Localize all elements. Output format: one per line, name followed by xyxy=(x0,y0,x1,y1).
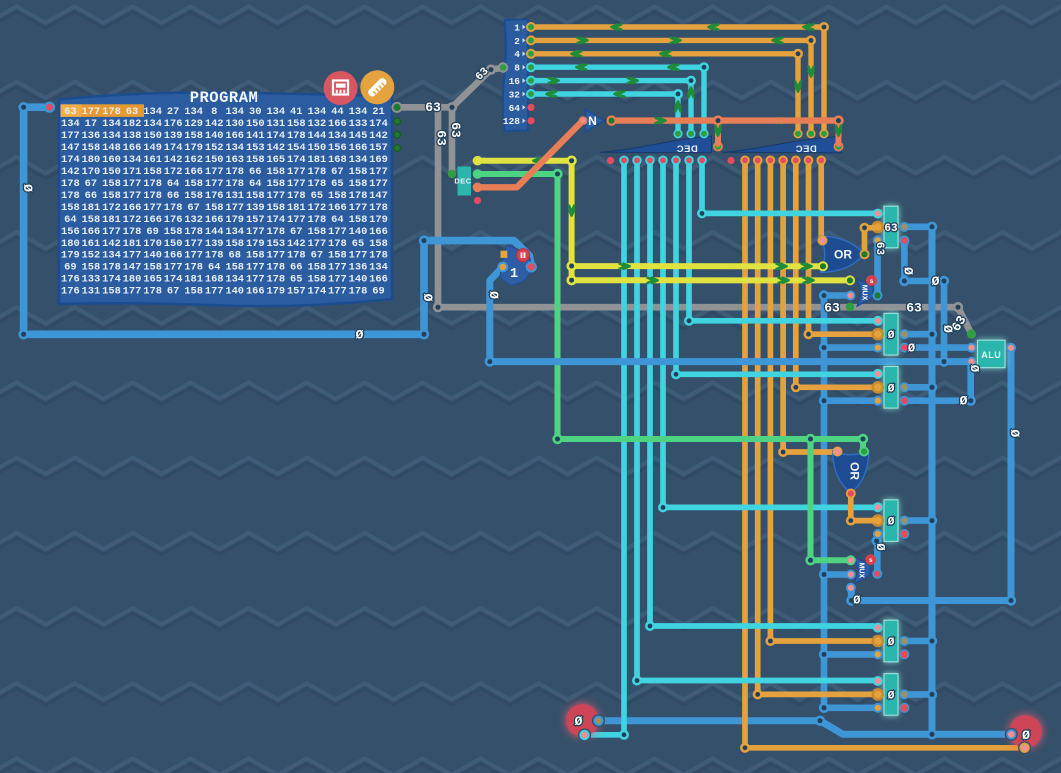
svg-text:134: 134 xyxy=(225,274,244,286)
svg-text:158: 158 xyxy=(184,286,203,298)
svg-text:Ø: Ø xyxy=(873,543,887,550)
svg-text:158: 158 xyxy=(82,142,101,154)
svg-text:181: 181 xyxy=(308,154,327,166)
svg-text:Ø: Ø xyxy=(967,365,981,372)
svg-text:166: 166 xyxy=(184,166,203,178)
svg-text:67: 67 xyxy=(187,202,199,214)
svg-text:176: 176 xyxy=(164,118,183,130)
svg-text:157: 157 xyxy=(369,142,388,154)
svg-text:174: 174 xyxy=(102,274,121,286)
svg-text:Ø: Ø xyxy=(888,517,895,529)
svg-text:150: 150 xyxy=(205,154,224,166)
svg-text:178: 178 xyxy=(369,202,388,214)
svg-text:134: 134 xyxy=(102,250,121,262)
svg-text:65: 65 xyxy=(331,178,343,190)
svg-text:131: 131 xyxy=(225,190,244,202)
svg-text:67: 67 xyxy=(290,226,302,238)
svg-text:Ø: Ø xyxy=(900,267,915,275)
svg-text:178: 178 xyxy=(287,130,306,142)
svg-text:66: 66 xyxy=(85,190,97,202)
svg-text:Ø: Ø xyxy=(420,294,435,302)
svg-text:142: 142 xyxy=(287,238,306,250)
svg-text:139: 139 xyxy=(246,202,265,214)
svg-text:178: 178 xyxy=(349,286,368,298)
svg-text:134: 134 xyxy=(308,106,327,118)
svg-text:130: 130 xyxy=(225,118,244,130)
svg-text:67: 67 xyxy=(311,250,323,262)
svg-text:69: 69 xyxy=(372,286,384,298)
svg-text:177: 177 xyxy=(61,130,80,142)
svg-text:178: 178 xyxy=(308,214,327,226)
svg-text:21: 21 xyxy=(372,106,384,118)
svg-text:158: 158 xyxy=(349,214,368,226)
svg-text:136: 136 xyxy=(349,262,368,274)
svg-text:142: 142 xyxy=(205,118,224,130)
svg-text:156: 156 xyxy=(61,226,80,238)
svg-text:178: 178 xyxy=(143,178,162,190)
svg-text:166: 166 xyxy=(123,142,142,154)
svg-text:168: 168 xyxy=(205,274,224,286)
svg-text:178: 178 xyxy=(308,178,327,190)
svg-text:140: 140 xyxy=(143,250,162,262)
svg-text:DEC: DEC xyxy=(454,177,471,186)
svg-text:177: 177 xyxy=(205,178,224,190)
svg-text:178: 178 xyxy=(143,286,162,298)
svg-text:138: 138 xyxy=(123,130,142,142)
svg-text:Ø: Ø xyxy=(356,328,364,343)
svg-text:163: 163 xyxy=(225,154,244,166)
svg-text:178: 178 xyxy=(143,190,162,202)
svg-text:134: 134 xyxy=(328,130,347,142)
svg-text:1: 1 xyxy=(514,22,520,33)
svg-text:66: 66 xyxy=(167,190,179,202)
svg-text:158: 158 xyxy=(82,262,101,274)
svg-text:158: 158 xyxy=(225,238,244,250)
svg-text:177: 177 xyxy=(266,190,285,202)
svg-text:133: 133 xyxy=(349,118,368,130)
svg-text:178: 178 xyxy=(308,166,327,178)
svg-text:165: 165 xyxy=(143,274,162,286)
svg-text:153: 153 xyxy=(266,238,285,250)
svg-text:Ø: Ø xyxy=(853,594,860,608)
svg-text:158: 158 xyxy=(143,166,162,178)
svg-text:147: 147 xyxy=(61,142,80,154)
svg-text:63: 63 xyxy=(824,301,840,316)
svg-text:174: 174 xyxy=(369,118,388,130)
svg-text:27: 27 xyxy=(167,106,179,118)
svg-text:Ø: Ø xyxy=(1007,429,1022,437)
svg-text:166: 166 xyxy=(369,226,388,238)
svg-text:Ø: Ø xyxy=(960,394,968,409)
svg-text:166: 166 xyxy=(164,250,183,262)
svg-text:166: 166 xyxy=(246,286,265,298)
svg-text:178: 178 xyxy=(123,226,142,238)
svg-text:158: 158 xyxy=(266,202,285,214)
svg-text:134: 134 xyxy=(266,106,285,118)
svg-text:65: 65 xyxy=(352,238,364,250)
svg-text:142: 142 xyxy=(102,238,121,250)
svg-text:181: 181 xyxy=(184,274,203,286)
svg-text:177: 177 xyxy=(184,250,203,262)
svg-text:63: 63 xyxy=(64,106,76,118)
svg-text:131: 131 xyxy=(82,286,101,298)
svg-text:64: 64 xyxy=(64,214,76,226)
svg-text:30: 30 xyxy=(249,106,261,118)
svg-text:134: 134 xyxy=(349,106,368,118)
svg-text:44: 44 xyxy=(331,106,343,118)
svg-text:178: 178 xyxy=(266,274,285,286)
svg-text:176: 176 xyxy=(61,286,80,298)
svg-text:63: 63 xyxy=(126,106,138,118)
svg-text:177: 177 xyxy=(123,190,142,202)
svg-text:157: 157 xyxy=(287,286,306,298)
svg-text:2: 2 xyxy=(514,36,520,47)
svg-text:PROGRAM: PROGRAM xyxy=(190,89,259,107)
svg-text:134: 134 xyxy=(143,118,162,130)
svg-text:158: 158 xyxy=(143,262,162,274)
svg-text:65: 65 xyxy=(311,190,323,202)
svg-text:158: 158 xyxy=(328,250,347,262)
svg-text:158: 158 xyxy=(102,178,121,190)
svg-text:160: 160 xyxy=(102,154,121,166)
svg-text:OR: OR xyxy=(834,248,852,262)
svg-text:166: 166 xyxy=(123,202,142,214)
svg-text:177: 177 xyxy=(205,286,224,298)
svg-text:158: 158 xyxy=(164,226,183,238)
svg-text:149: 149 xyxy=(143,142,162,154)
svg-text:169: 169 xyxy=(369,154,388,166)
svg-text:158: 158 xyxy=(184,130,203,142)
svg-text:172: 172 xyxy=(123,214,142,226)
svg-text:Ø: Ø xyxy=(888,330,895,342)
svg-text:177: 177 xyxy=(349,250,368,262)
svg-text:177: 177 xyxy=(266,250,285,262)
svg-text:DEC: DEC xyxy=(676,143,698,154)
svg-text:181: 181 xyxy=(287,202,306,214)
svg-text:63: 63 xyxy=(448,122,463,138)
svg-text:177: 177 xyxy=(123,178,142,190)
svg-text:Ø: Ø xyxy=(888,690,895,702)
svg-text:N: N xyxy=(588,114,597,128)
svg-text:144: 144 xyxy=(308,130,327,142)
svg-text:177: 177 xyxy=(246,226,265,238)
svg-text:134: 134 xyxy=(225,142,244,154)
svg-text:158: 158 xyxy=(308,274,327,286)
svg-text:178: 178 xyxy=(266,226,285,238)
svg-text:182: 182 xyxy=(123,118,142,130)
svg-text:65: 65 xyxy=(290,274,302,286)
svg-text:177: 177 xyxy=(369,178,388,190)
svg-text:153: 153 xyxy=(246,142,265,154)
svg-text:140: 140 xyxy=(349,274,368,286)
svg-text:178: 178 xyxy=(61,190,80,202)
svg-text:142: 142 xyxy=(164,154,183,166)
svg-text:177: 177 xyxy=(328,286,347,298)
svg-text:134: 134 xyxy=(123,154,142,166)
svg-text:64: 64 xyxy=(167,178,179,190)
svg-text:174: 174 xyxy=(61,154,80,166)
svg-text:181: 181 xyxy=(82,202,101,214)
svg-text:178: 178 xyxy=(184,226,203,238)
svg-text:150: 150 xyxy=(246,118,265,130)
svg-text:177: 177 xyxy=(287,166,306,178)
svg-text:69: 69 xyxy=(64,262,76,274)
svg-text:178: 178 xyxy=(225,178,244,190)
svg-text:178: 178 xyxy=(102,106,121,118)
svg-text:179: 179 xyxy=(369,214,388,226)
svg-text:142: 142 xyxy=(266,142,285,154)
svg-text:67: 67 xyxy=(331,166,343,178)
svg-text:158: 158 xyxy=(287,118,306,130)
svg-text:132: 132 xyxy=(184,214,203,226)
svg-text:178: 178 xyxy=(266,262,285,274)
svg-text:180: 180 xyxy=(61,238,80,250)
svg-text:180: 180 xyxy=(82,154,101,166)
svg-text:64: 64 xyxy=(509,103,521,114)
svg-text:69: 69 xyxy=(146,226,158,238)
svg-text:OR: OR xyxy=(848,462,862,480)
svg-text:158: 158 xyxy=(369,238,388,250)
svg-text:152: 152 xyxy=(205,142,224,154)
svg-text:154: 154 xyxy=(287,142,306,154)
svg-text:177: 177 xyxy=(143,202,162,214)
svg-text:179: 179 xyxy=(266,286,285,298)
svg-text:158: 158 xyxy=(246,190,265,202)
svg-text:157: 157 xyxy=(246,214,265,226)
svg-text:174: 174 xyxy=(164,274,183,286)
svg-text:158: 158 xyxy=(225,262,244,274)
svg-text:179: 179 xyxy=(184,142,203,154)
svg-text:136: 136 xyxy=(82,130,101,142)
svg-text:158: 158 xyxy=(102,190,121,202)
svg-text:168: 168 xyxy=(328,154,347,166)
svg-text:17: 17 xyxy=(85,118,97,130)
svg-text:41: 41 xyxy=(290,106,302,118)
svg-text:178: 178 xyxy=(328,238,347,250)
svg-text:178: 178 xyxy=(349,190,368,202)
svg-text:150: 150 xyxy=(102,166,121,178)
svg-text:158: 158 xyxy=(246,154,265,166)
svg-text:177: 177 xyxy=(328,226,347,238)
svg-text:s: s xyxy=(869,557,873,564)
svg-text:8: 8 xyxy=(514,63,520,74)
svg-text:165: 165 xyxy=(266,154,285,166)
svg-text:166: 166 xyxy=(205,214,224,226)
svg-text:134: 134 xyxy=(61,118,80,130)
svg-text:64: 64 xyxy=(331,214,343,226)
svg-text:158: 158 xyxy=(349,166,368,178)
svg-text:161: 161 xyxy=(143,154,162,166)
svg-text:134: 134 xyxy=(102,118,121,130)
svg-text:177: 177 xyxy=(369,166,388,178)
svg-text:177: 177 xyxy=(184,238,203,250)
svg-text:150: 150 xyxy=(164,238,183,250)
svg-text:4: 4 xyxy=(514,49,520,60)
svg-text:139: 139 xyxy=(164,130,183,142)
svg-text:64: 64 xyxy=(249,178,261,190)
svg-text:179: 179 xyxy=(225,214,244,226)
svg-text:178: 178 xyxy=(205,250,224,262)
svg-text:178: 178 xyxy=(184,262,203,274)
svg-text:177: 177 xyxy=(164,262,183,274)
svg-text:158: 158 xyxy=(61,202,80,214)
svg-text:150: 150 xyxy=(308,142,327,154)
svg-text:177: 177 xyxy=(102,226,121,238)
svg-text:Ø: Ø xyxy=(932,274,940,289)
svg-text:176: 176 xyxy=(164,214,183,226)
svg-text:162: 162 xyxy=(184,154,203,166)
svg-text:158: 158 xyxy=(205,202,224,214)
svg-text:1: 1 xyxy=(510,267,518,282)
svg-text:176: 176 xyxy=(61,274,80,286)
svg-text:177: 177 xyxy=(349,202,368,214)
svg-text:Ø: Ø xyxy=(1022,728,1030,743)
svg-text:179: 179 xyxy=(61,250,80,262)
svg-text:177: 177 xyxy=(123,286,142,298)
svg-text:172: 172 xyxy=(102,202,121,214)
svg-text:177: 177 xyxy=(287,214,306,226)
svg-text:158: 158 xyxy=(308,226,327,238)
svg-text:MUX: MUX xyxy=(861,285,868,301)
svg-text:174: 174 xyxy=(266,130,285,142)
svg-text:134: 134 xyxy=(225,226,244,238)
svg-text:64: 64 xyxy=(208,262,220,274)
svg-text:158: 158 xyxy=(349,178,368,190)
svg-text:156: 156 xyxy=(328,142,347,154)
svg-text:170: 170 xyxy=(82,166,101,178)
svg-text:131: 131 xyxy=(266,118,285,130)
svg-text:142: 142 xyxy=(61,166,80,178)
svg-text:Ø: Ø xyxy=(908,342,915,356)
svg-text:177: 177 xyxy=(246,262,265,274)
svg-text:174: 174 xyxy=(266,214,285,226)
svg-text:158: 158 xyxy=(266,166,285,178)
svg-text:140: 140 xyxy=(349,226,368,238)
svg-text:177: 177 xyxy=(82,106,101,118)
svg-text:166: 166 xyxy=(143,214,162,226)
svg-text:181: 181 xyxy=(102,214,121,226)
svg-text:178: 178 xyxy=(369,250,388,262)
svg-text:133: 133 xyxy=(82,274,101,286)
svg-text:171: 171 xyxy=(123,166,142,178)
svg-text:140: 140 xyxy=(225,286,244,298)
svg-text:177: 177 xyxy=(328,274,347,286)
svg-text:141: 141 xyxy=(246,130,265,142)
svg-text:16: 16 xyxy=(509,76,521,87)
svg-text:177: 177 xyxy=(328,262,347,274)
svg-text:158: 158 xyxy=(184,178,203,190)
svg-text:179: 179 xyxy=(246,238,265,250)
svg-text:s: s xyxy=(870,278,874,285)
svg-text:148: 148 xyxy=(102,142,121,154)
svg-text:63: 63 xyxy=(434,130,449,146)
svg-text:158: 158 xyxy=(102,286,121,298)
svg-text:8: 8 xyxy=(211,106,217,118)
svg-text:152: 152 xyxy=(82,250,101,262)
svg-text:176: 176 xyxy=(205,190,224,202)
svg-text:144: 144 xyxy=(205,226,224,238)
svg-text:145: 145 xyxy=(349,130,368,142)
svg-text:166: 166 xyxy=(82,226,101,238)
svg-text:32: 32 xyxy=(509,89,521,100)
svg-text:177: 177 xyxy=(123,250,142,262)
svg-text:158: 158 xyxy=(308,262,327,274)
svg-text:134: 134 xyxy=(349,154,368,166)
svg-text:158: 158 xyxy=(266,178,285,190)
svg-text:178: 178 xyxy=(164,202,183,214)
svg-text:170: 170 xyxy=(143,238,162,250)
svg-text:142: 142 xyxy=(369,130,388,142)
svg-text:174: 174 xyxy=(308,286,327,298)
svg-text:66: 66 xyxy=(290,262,302,274)
svg-text:MUX: MUX xyxy=(858,563,865,579)
svg-text:129: 129 xyxy=(184,118,203,130)
svg-text:Ø: Ø xyxy=(888,383,895,395)
svg-text:166: 166 xyxy=(328,118,347,130)
svg-text:Ø: Ø xyxy=(575,714,583,729)
svg-text:177: 177 xyxy=(225,202,244,214)
svg-text:63: 63 xyxy=(425,100,441,115)
svg-text:67: 67 xyxy=(167,286,179,298)
svg-text:174: 174 xyxy=(287,154,306,166)
svg-text:63: 63 xyxy=(873,242,885,256)
svg-text:172: 172 xyxy=(164,166,183,178)
svg-text:ALU: ALU xyxy=(981,350,1001,360)
svg-text:181: 181 xyxy=(123,238,142,250)
svg-text:139: 139 xyxy=(205,238,224,250)
svg-text:177: 177 xyxy=(205,166,224,178)
svg-text:134: 134 xyxy=(225,106,244,118)
svg-text:166: 166 xyxy=(369,274,388,286)
svg-text:174: 174 xyxy=(164,142,183,154)
svg-text:134: 134 xyxy=(143,106,162,118)
svg-text:66: 66 xyxy=(249,166,261,178)
svg-text:172: 172 xyxy=(308,202,327,214)
svg-text:180: 180 xyxy=(123,274,142,286)
svg-text:Ø: Ø xyxy=(940,325,955,333)
svg-text:158: 158 xyxy=(328,190,347,202)
svg-text:Ø: Ø xyxy=(888,637,895,649)
svg-text:177: 177 xyxy=(287,178,306,190)
svg-text:63: 63 xyxy=(884,223,898,235)
svg-text:161: 161 xyxy=(82,238,101,250)
svg-text:68: 68 xyxy=(228,250,240,262)
svg-text:158: 158 xyxy=(82,214,101,226)
svg-text:Ø: Ø xyxy=(486,291,501,299)
svg-text:166: 166 xyxy=(328,202,347,214)
svg-text:166: 166 xyxy=(349,142,368,154)
svg-text:178: 178 xyxy=(287,190,306,202)
svg-text:140: 140 xyxy=(205,130,224,142)
svg-text:128: 128 xyxy=(503,116,520,127)
svg-text:177: 177 xyxy=(246,274,265,286)
svg-text:166: 166 xyxy=(225,130,244,142)
svg-text:177: 177 xyxy=(308,238,327,250)
svg-text:178: 178 xyxy=(287,250,306,262)
svg-text:178: 178 xyxy=(102,262,121,274)
svg-text:158: 158 xyxy=(246,250,265,262)
svg-text:178: 178 xyxy=(225,166,244,178)
svg-text:Ø: Ø xyxy=(20,184,35,192)
svg-text:132: 132 xyxy=(308,118,327,130)
svg-text:150: 150 xyxy=(143,130,162,142)
svg-text:178: 178 xyxy=(61,178,80,190)
svg-text:134: 134 xyxy=(102,130,121,142)
svg-text:158: 158 xyxy=(184,190,203,202)
svg-text:147: 147 xyxy=(369,190,388,202)
svg-text:134: 134 xyxy=(369,262,388,274)
svg-text:63: 63 xyxy=(906,301,922,316)
